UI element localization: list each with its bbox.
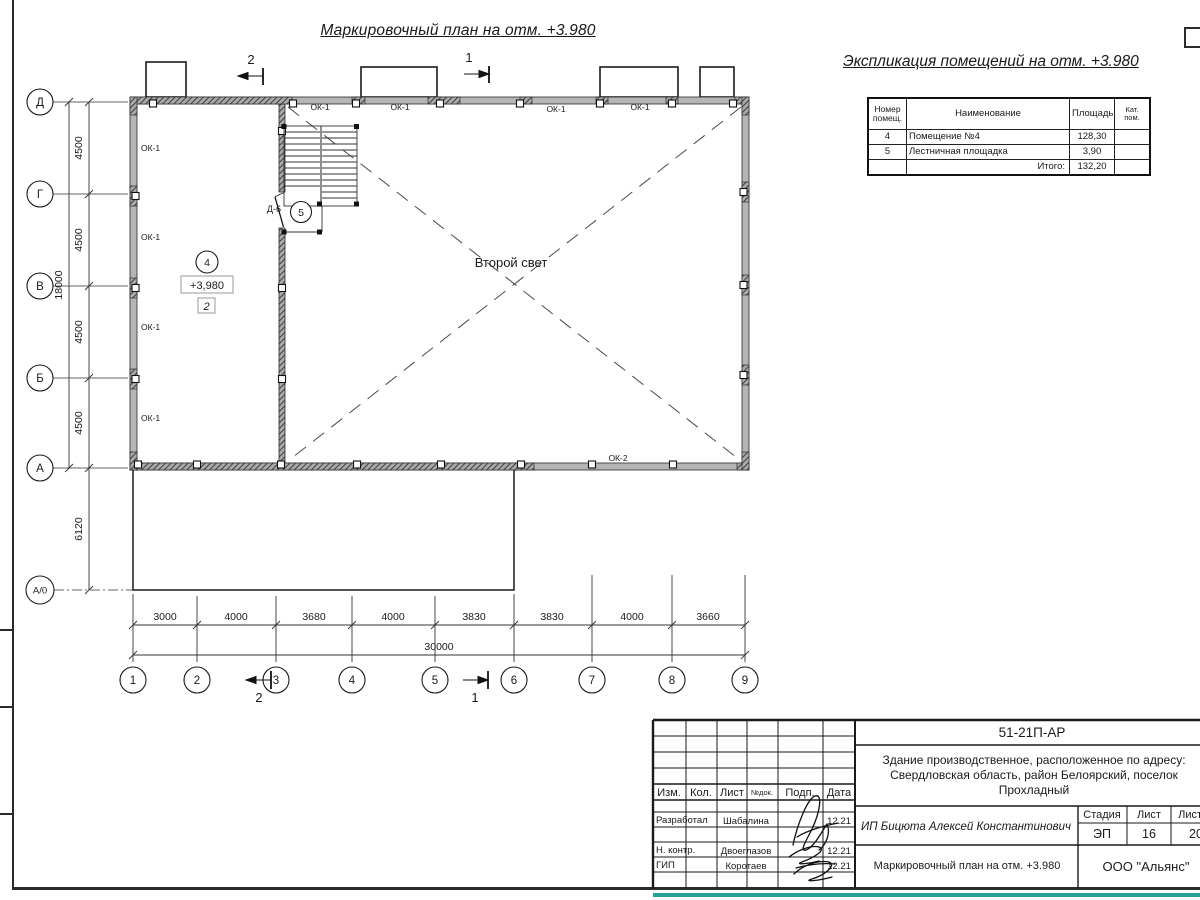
window-label: ОК-1 [141, 143, 160, 153]
axis-label: А/0 [33, 586, 47, 597]
section-label: 1 [465, 50, 472, 65]
window-label: ОК-2 [608, 453, 627, 463]
section-markers [238, 66, 489, 689]
axis-label: В [36, 281, 44, 293]
axis-label: 6 [511, 675, 517, 687]
axis-label: 5 [432, 675, 438, 687]
stage-header: Стадия [1083, 809, 1121, 821]
floor-plan: Д Г В Б А А/0 4500 4500 4500 4500 6120 1… [0, 0, 1200, 720]
axis-label: 8 [669, 675, 675, 687]
dim-label: 4500 [73, 228, 85, 252]
stamp-name: Шабалина [723, 816, 770, 827]
dim-label: 4500 [73, 136, 85, 160]
axis-label: Б [36, 373, 44, 385]
dim-label: 3830 [540, 611, 564, 623]
axis-label: 4 [349, 675, 356, 687]
window-label: ОК-1 [310, 102, 329, 112]
doc-number: 51-21П-АР [999, 725, 1066, 740]
stamp-role: ГИП [656, 860, 675, 871]
stamp-header-data: Дата [827, 787, 852, 799]
sheet-header: Лист [1137, 809, 1161, 821]
room-number: 4 [204, 257, 210, 269]
stamp-role: Н. контр. [656, 845, 695, 856]
axis-label: 7 [589, 675, 595, 687]
stamp-header-list: Лист [720, 787, 744, 799]
dim-label: 4000 [381, 611, 405, 623]
dim-label: 4000 [224, 611, 248, 623]
axis-label: Г [37, 189, 44, 201]
top-bumpouts [146, 62, 734, 97]
axis-circles-bottom [120, 667, 758, 693]
axis-grid-left [53, 102, 133, 590]
dim-label: 3680 [302, 611, 326, 623]
window-label: ОК-1 [630, 102, 649, 112]
stamp-header-podp: Подп. [785, 787, 814, 799]
sheets-value: 20 [1189, 827, 1200, 841]
stamp-header-ndok: №док. [751, 788, 773, 797]
stamp-name: Коротаев [725, 861, 766, 872]
sheets-header: Листов [1178, 809, 1200, 821]
axis-label: 9 [742, 675, 748, 687]
axis-label: 3 [273, 675, 279, 687]
window-label: ОК-1 [141, 322, 160, 332]
stage-value: ЭП [1093, 827, 1111, 841]
window-label: ОК-1 [141, 232, 160, 242]
dim-label: 4500 [73, 320, 85, 344]
section-label: 1 [471, 690, 478, 705]
dim-total-label: 18000 [53, 270, 65, 299]
client-name: ИП Бицюта Алексей Константинович [861, 821, 1071, 833]
dim-label: 4000 [620, 611, 644, 623]
room-number: 5 [298, 207, 304, 219]
lower-extension [133, 470, 514, 590]
door-label: Д-6 [267, 204, 281, 214]
stamp-header-kol: Кол. [690, 787, 712, 799]
section-label: 2 [247, 52, 254, 67]
frame-tick [0, 813, 13, 815]
axis-label: А [36, 463, 44, 475]
dim-label: 4500 [73, 411, 85, 435]
section-label: 2 [255, 690, 262, 705]
stamp-date: 12.21 [827, 816, 851, 827]
dim-label: 3000 [153, 611, 177, 623]
dim-label: 3830 [462, 611, 486, 623]
zone-number: 2 [202, 301, 209, 313]
void-label: Второй свет [475, 255, 548, 270]
dim-total-label: 30000 [424, 641, 453, 653]
drawing-sheet: Маркировочный план на отм. +3.980 Экспли… [0, 0, 1200, 900]
company-name: ООО "Альянс" [1103, 859, 1190, 874]
axis-label: 2 [194, 675, 200, 687]
dim-label: 6120 [73, 517, 85, 541]
dim-label: 3660 [696, 611, 720, 623]
axis-label: 1 [130, 675, 136, 687]
axis-circles-left [26, 89, 54, 604]
window-label: ОК-1 [390, 102, 409, 112]
room-markers: 4 +3,980 2 5 Второй свет [181, 202, 547, 314]
void-diagonals [288, 107, 741, 461]
stamp-header-izm: Изм. [657, 787, 681, 799]
window-label: ОК-1 [141, 413, 160, 423]
stamp-role: Разработал [656, 815, 708, 826]
elevation-mark: +3,980 [190, 280, 224, 292]
axis-label: Д [36, 97, 44, 109]
stamp-name: Двоеглазов [721, 846, 772, 857]
stamp-date: 12.21 [827, 846, 851, 857]
signature-stroke [789, 796, 838, 881]
stamp-drawing-title: Маркировочный план на отм. +3.980 [858, 848, 1076, 885]
sheet-value: 16 [1142, 827, 1156, 841]
window-label: ОК-1 [546, 104, 565, 114]
project-address: Здание производственное, расположенное п… [858, 747, 1200, 804]
